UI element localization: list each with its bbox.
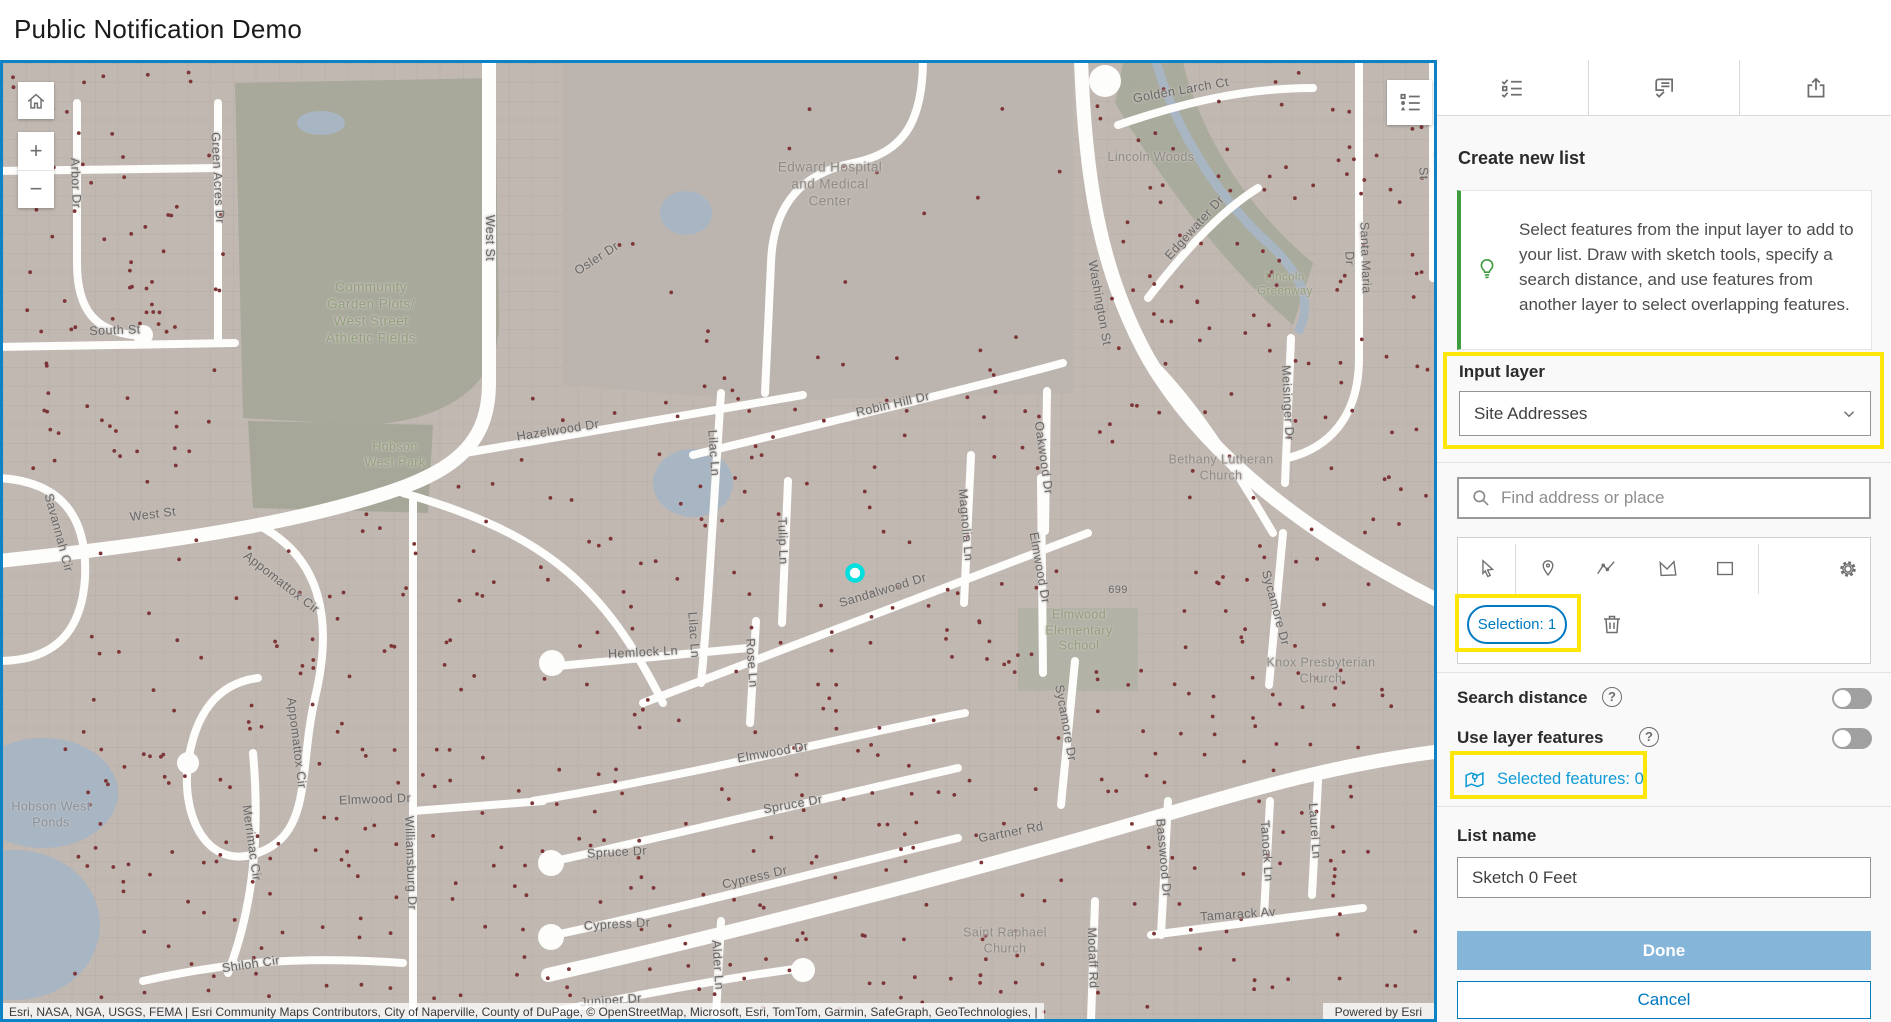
- app-root: Public Notification Demo: [0, 0, 1891, 1022]
- toggle-knob: [1834, 690, 1851, 707]
- toolbar-divider: [1758, 544, 1759, 594]
- gear-icon: [1836, 557, 1860, 581]
- home-button[interactable]: [18, 82, 54, 119]
- tab-create-list[interactable]: [1437, 60, 1589, 115]
- polygon-tool-button[interactable]: [1654, 555, 1682, 583]
- map-canvas[interactable]: [3, 63, 1434, 1019]
- sketch-toolbar: Selection: 1: [1457, 537, 1871, 664]
- point-tool-button[interactable]: [1534, 555, 1562, 583]
- powered-by-esri: Powered by Esri: [1323, 1003, 1434, 1022]
- zoom-out-button[interactable]: −: [18, 170, 54, 209]
- lightbulb-icon: [1474, 256, 1500, 287]
- search-distance-label: Search distance: [1457, 688, 1587, 708]
- create-list-icon: [1499, 75, 1525, 101]
- map-view[interactable]: West StWest StGreen Acres DrArbor DrSout…: [0, 60, 1437, 1022]
- export-icon: [1803, 75, 1829, 101]
- tab-export-list[interactable]: [1740, 60, 1891, 115]
- legend-icon: [1397, 90, 1423, 116]
- section-divider: [1437, 806, 1891, 807]
- selected-features-link[interactable]: Selected features: 0: [1462, 764, 1644, 794]
- page-title: Public Notification Demo: [14, 14, 302, 45]
- polyline-tool-button[interactable]: [1592, 555, 1620, 583]
- input-layer-label: Input layer: [1459, 362, 1545, 382]
- rectangle-icon: [1714, 558, 1736, 580]
- delete-selection-button[interactable]: [1598, 610, 1626, 638]
- polyline-icon: [1595, 558, 1617, 580]
- selected-features-count: Selected features: 0: [1497, 770, 1644, 789]
- panel-heading: Create new list: [1458, 148, 1585, 169]
- zoom-control: + −: [18, 132, 54, 208]
- section-divider: [1437, 672, 1891, 673]
- chevron-down-icon: [1840, 405, 1858, 423]
- toolbar-divider: [1515, 544, 1516, 594]
- search-distance-toggle[interactable]: [1832, 688, 1872, 709]
- cursor-icon: [1477, 558, 1499, 580]
- tab-review-list[interactable]: [1589, 60, 1741, 115]
- toggle-knob: [1834, 730, 1851, 747]
- map-attribution: Esri, NASA, NGA, USGS, FEMA | Esri Commu…: [3, 1003, 1434, 1019]
- use-layer-features-toggle[interactable]: [1832, 728, 1872, 749]
- selected-point-marker[interactable]: [848, 566, 863, 581]
- zoom-in-button[interactable]: +: [18, 132, 54, 170]
- pond: [660, 191, 712, 235]
- tip-box: Select features from the input layer to …: [1457, 190, 1872, 350]
- rectangle-tool-button[interactable]: [1711, 555, 1739, 583]
- sketch-settings-button[interactable]: [1834, 555, 1862, 583]
- legend-button[interactable]: [1387, 80, 1432, 125]
- park-area: [235, 78, 499, 425]
- hospital-campus-area: [563, 63, 1073, 401]
- tip-text: Select features from the input layer to …: [1519, 217, 1855, 317]
- pond: [297, 111, 345, 135]
- app-header: Public Notification Demo: [0, 0, 1891, 60]
- input-layer-value: Site Addresses: [1474, 392, 1587, 435]
- attribution-text: Esri, NASA, NGA, USGS, FEMA | Esri Commu…: [3, 1003, 1044, 1022]
- cancel-button[interactable]: Cancel: [1457, 981, 1871, 1019]
- done-button[interactable]: Done: [1457, 931, 1871, 970]
- point-icon: [1537, 558, 1559, 580]
- review-list-icon: [1651, 75, 1677, 101]
- use-layer-features-label: Use layer features: [1457, 728, 1603, 748]
- polygon-icon: [1657, 558, 1679, 580]
- input-layer-select[interactable]: Site Addresses: [1459, 391, 1871, 436]
- school-area: [1018, 608, 1138, 691]
- section-divider: [1437, 462, 1891, 463]
- search-icon: [1471, 488, 1491, 508]
- list-name-input[interactable]: [1457, 857, 1871, 898]
- use-layer-features-help-icon[interactable]: ?: [1639, 727, 1659, 747]
- home-icon: [25, 90, 47, 112]
- list-name-label: List name: [1457, 826, 1536, 846]
- selection-count-badge[interactable]: Selection: 1: [1467, 605, 1567, 644]
- search-distance-help-icon[interactable]: ?: [1602, 687, 1622, 707]
- pond: [653, 449, 733, 517]
- address-search: [1457, 477, 1871, 519]
- map-pin-icon: [1462, 767, 1487, 792]
- side-panel: Create new list Select features from the…: [1437, 60, 1891, 1022]
- trash-icon: [1600, 612, 1624, 636]
- select-tool-button[interactable]: [1474, 555, 1502, 583]
- search-input[interactable]: [1501, 479, 1869, 517]
- panel-tabs: [1437, 60, 1891, 116]
